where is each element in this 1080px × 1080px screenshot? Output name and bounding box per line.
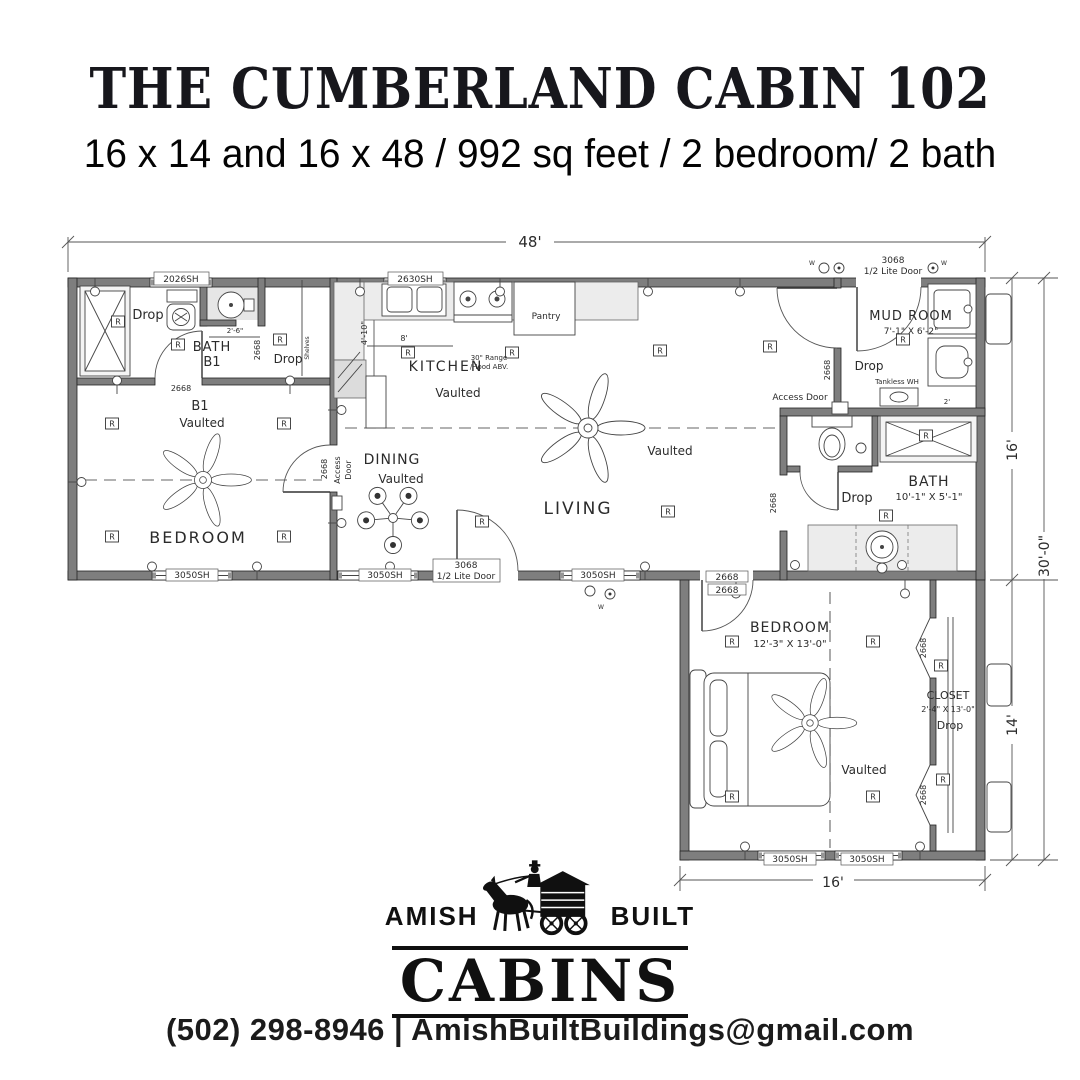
receptacle-symbol-7: R <box>405 349 411 358</box>
contact-line: (502) 298-8946 | AmishBuiltBuildings@gma… <box>166 1012 914 1047</box>
vanity-bath2 <box>791 525 958 573</box>
logo: AMISH <box>0 858 1080 1018</box>
plan-tag-door-2668-closet-b1: 2668 <box>253 340 262 360</box>
receptacle-symbol-6: R <box>277 336 283 345</box>
plan-tag-door-2668-wing-b: 2668 <box>716 586 739 596</box>
receptacle-symbol-10: R <box>767 343 773 352</box>
receptacle-symbol-19: R <box>870 793 876 802</box>
plan-label-drop-mud: Drop <box>855 359 884 373</box>
ceiling-fan-b1 <box>160 432 251 528</box>
plan-tag-window-2630sh: 2630SH <box>397 275 432 285</box>
access-panel-left <box>332 496 342 510</box>
receptacle-symbol-3: R <box>281 533 287 542</box>
plan-dim-height-main: 16' <box>1005 439 1021 461</box>
plan-label-w-light-2: W <box>941 260 947 267</box>
receptacle-symbol-12: R <box>479 518 485 527</box>
plan-label-dim-2-6: 2'-6" <box>227 327 244 335</box>
plan-label-tankless: Tankless WH <box>874 378 919 386</box>
plan-label-w-light-3: W <box>598 604 604 611</box>
plan-label-range-a: 30" Range <box>471 354 508 362</box>
plan-label-access-door-left-b: Door <box>344 460 353 480</box>
plan-label-bath-b1-b: B1 <box>203 355 220 370</box>
plan-label-living: LIVING <box>543 499 612 519</box>
plan-tag-door-3068-front-b: 1/2 Lite Door <box>437 572 496 582</box>
receptacle-symbol-18: R <box>729 793 735 802</box>
receptacle-symbol-16: R <box>729 638 735 647</box>
ceiling-fan-living <box>538 372 645 485</box>
plan-label-dim-4-10: 4'-10" <box>360 321 369 345</box>
shower-b1 <box>80 286 130 376</box>
receptacle-symbol-4: R <box>175 341 181 350</box>
washer-mudroom <box>928 338 976 386</box>
receptacle-symbol-15: R <box>883 512 889 521</box>
receptacle-symbol-17: R <box>870 638 876 647</box>
receptacle-symbol-21: R <box>940 776 946 785</box>
plan-label-drop-bath-b1: Drop <box>132 308 163 323</box>
plan-tag-door-3068-back-b: 1/2 Lite Door <box>864 267 923 277</box>
plan-tag-window-2026sh: 2026SH <box>163 275 198 285</box>
plan-label-closet-dim: 2'-4" X 13'-0" <box>921 705 975 714</box>
receptacle-symbol-8: R <box>509 349 515 358</box>
exhaust-fan-b1 <box>167 304 195 330</box>
plan-label-bath2: BATH <box>908 474 949 490</box>
plan-label-dim-2: 2' <box>944 398 950 406</box>
receptacle-symbol-9: R <box>657 347 663 356</box>
plan-label-kitchen-vaulted: Vaulted <box>435 386 480 400</box>
plan-label-b1: B1 <box>191 399 208 414</box>
bed <box>690 670 830 808</box>
plan-label-pantry: Pantry <box>532 312 561 322</box>
page-subtitle: 16 x 14 and 16 x 48 / 992 sq feet / 2 be… <box>16 132 1064 177</box>
dining-chandelier <box>357 484 429 553</box>
horse-and-wagon-icon <box>479 858 611 944</box>
receptacle-symbol-20: R <box>938 662 944 671</box>
plan-label-access-door-right: Access Door <box>772 393 828 403</box>
plan-label-dim-8: 8' <box>400 334 407 343</box>
receptacle-symbol-2: R <box>109 533 115 542</box>
plan-tag-window-3050sh-3: 3050SH <box>580 571 615 581</box>
floor-plan: RRRRRRRRRRRRRRRRRRRRRR 48'16'30'-0"14'16… <box>0 220 1080 900</box>
plan-label-mud-room: MUD ROOM <box>869 309 953 324</box>
receptacle-symbol-14: R <box>923 432 929 441</box>
toilet-wc <box>812 416 866 460</box>
plan-label-drop-bath2: Drop <box>841 491 872 506</box>
plan-label-bath2-dim: 10'-1" X 5'-1" <box>896 492 963 503</box>
plan-dim-width-main: 48' <box>518 233 541 251</box>
plan-label-drop-closet-b1: Drop <box>274 352 303 366</box>
kitchen-sink <box>382 284 446 316</box>
plan-label-range-b: /Hood ABV. <box>470 363 508 371</box>
pantry <box>514 282 575 335</box>
footer: (502) 298-8946 | AmishBuiltBuildings@gma… <box>0 1012 1080 1048</box>
logo-word-amish: AMISH <box>385 901 479 944</box>
access-panel-right <box>832 402 848 414</box>
plan-label-living-vaulted: Vaulted <box>647 444 692 458</box>
plan-label-bedroom2-vaulted: Vaulted <box>841 763 886 777</box>
header: THE CUMBERLAND CABIN 102 16 x 14 and 16 … <box>0 56 1080 177</box>
plan-tag-window-3050sh-2: 3050SH <box>367 571 402 581</box>
door-water-closet <box>800 472 838 510</box>
logo-top-row: AMISH <box>385 858 695 944</box>
plan-label-bath-b1-a: BATH <box>193 340 232 355</box>
door-mudroom-interior <box>777 288 837 348</box>
minisplit-1 <box>986 294 1011 344</box>
logo-word-built: BUILT <box>611 901 696 944</box>
receptacle-symbol-1: R <box>281 420 287 429</box>
page-title: THE CUMBERLAND CABIN 102 <box>65 56 1015 122</box>
plan-label-shelves: Shelves <box>304 336 311 359</box>
plan-label-w-light-1: W <box>809 260 815 267</box>
porch-lights-front <box>585 586 615 599</box>
receptacle-symbol-5: R <box>115 318 121 327</box>
plan-label-dining-vaulted: Vaulted <box>378 472 423 486</box>
plan-tag-door-2668-closet-top: 2668 <box>919 638 928 658</box>
plan-label-closet-drop: Drop <box>937 719 963 732</box>
plan-tag-door-3068-front-a: 3068 <box>455 561 478 571</box>
window-shelf-b1 <box>167 290 197 302</box>
plan-dim-height-wing: 14' <box>1005 714 1021 736</box>
plan-tag-door-2668-closet-bottom: 2668 <box>919 785 928 805</box>
plan-tag-door-2668-bedroom-b1: 2668 <box>320 459 329 479</box>
plan-label-b1-vaulted: Vaulted <box>179 416 224 430</box>
plan-tag-door-3068-back-a: 3068 <box>882 256 905 266</box>
plan-label-dining: DINING <box>364 452 421 468</box>
plan-label-bedroom2-dim: 12'-3" X 13'-0" <box>753 639 826 650</box>
plan-dim-height-overall: 30'-0" <box>1037 535 1053 577</box>
receptacle-symbol-11: R <box>665 508 671 517</box>
plan-label-bedroom2: BEDROOM <box>750 620 830 636</box>
plan-tag-door-2668-bath-b1: 2668 <box>171 384 191 393</box>
tankless-water-heater <box>880 388 918 406</box>
plan-tag-door-2668-mudroom: 2668 <box>823 360 832 380</box>
plan-tag-door-2668-hall: 2668 <box>769 493 778 513</box>
plan-label-closet: CLOSET <box>927 689 970 702</box>
receptacle-symbol-0: R <box>109 420 115 429</box>
logo-word-cabins: CABINS <box>400 951 680 1012</box>
minisplit-2 <box>987 664 1011 706</box>
plan-label-access-door-left-a: Access <box>333 456 342 483</box>
plan-tag-door-2668-wing-a: 2668 <box>716 573 739 583</box>
plan-label-mud-room-dim: 7'-1" X 6'-2" <box>884 327 939 337</box>
plan-label-bedroom-b1: BEDROOM <box>149 528 247 547</box>
minisplit-3 <box>987 782 1011 832</box>
plan-tag-window-3050sh-1: 3050SH <box>174 571 209 581</box>
